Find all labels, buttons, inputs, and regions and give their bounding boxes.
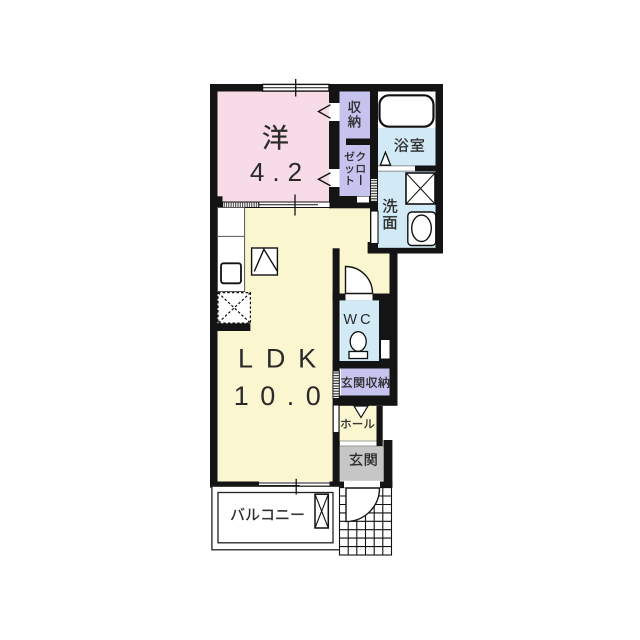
svg-text:10.0: 10.0 (234, 381, 333, 411)
svg-text:LDK: LDK (238, 344, 329, 374)
svg-text:WC: WC (343, 312, 373, 328)
svg-text:4.2: 4.2 (250, 157, 310, 187)
